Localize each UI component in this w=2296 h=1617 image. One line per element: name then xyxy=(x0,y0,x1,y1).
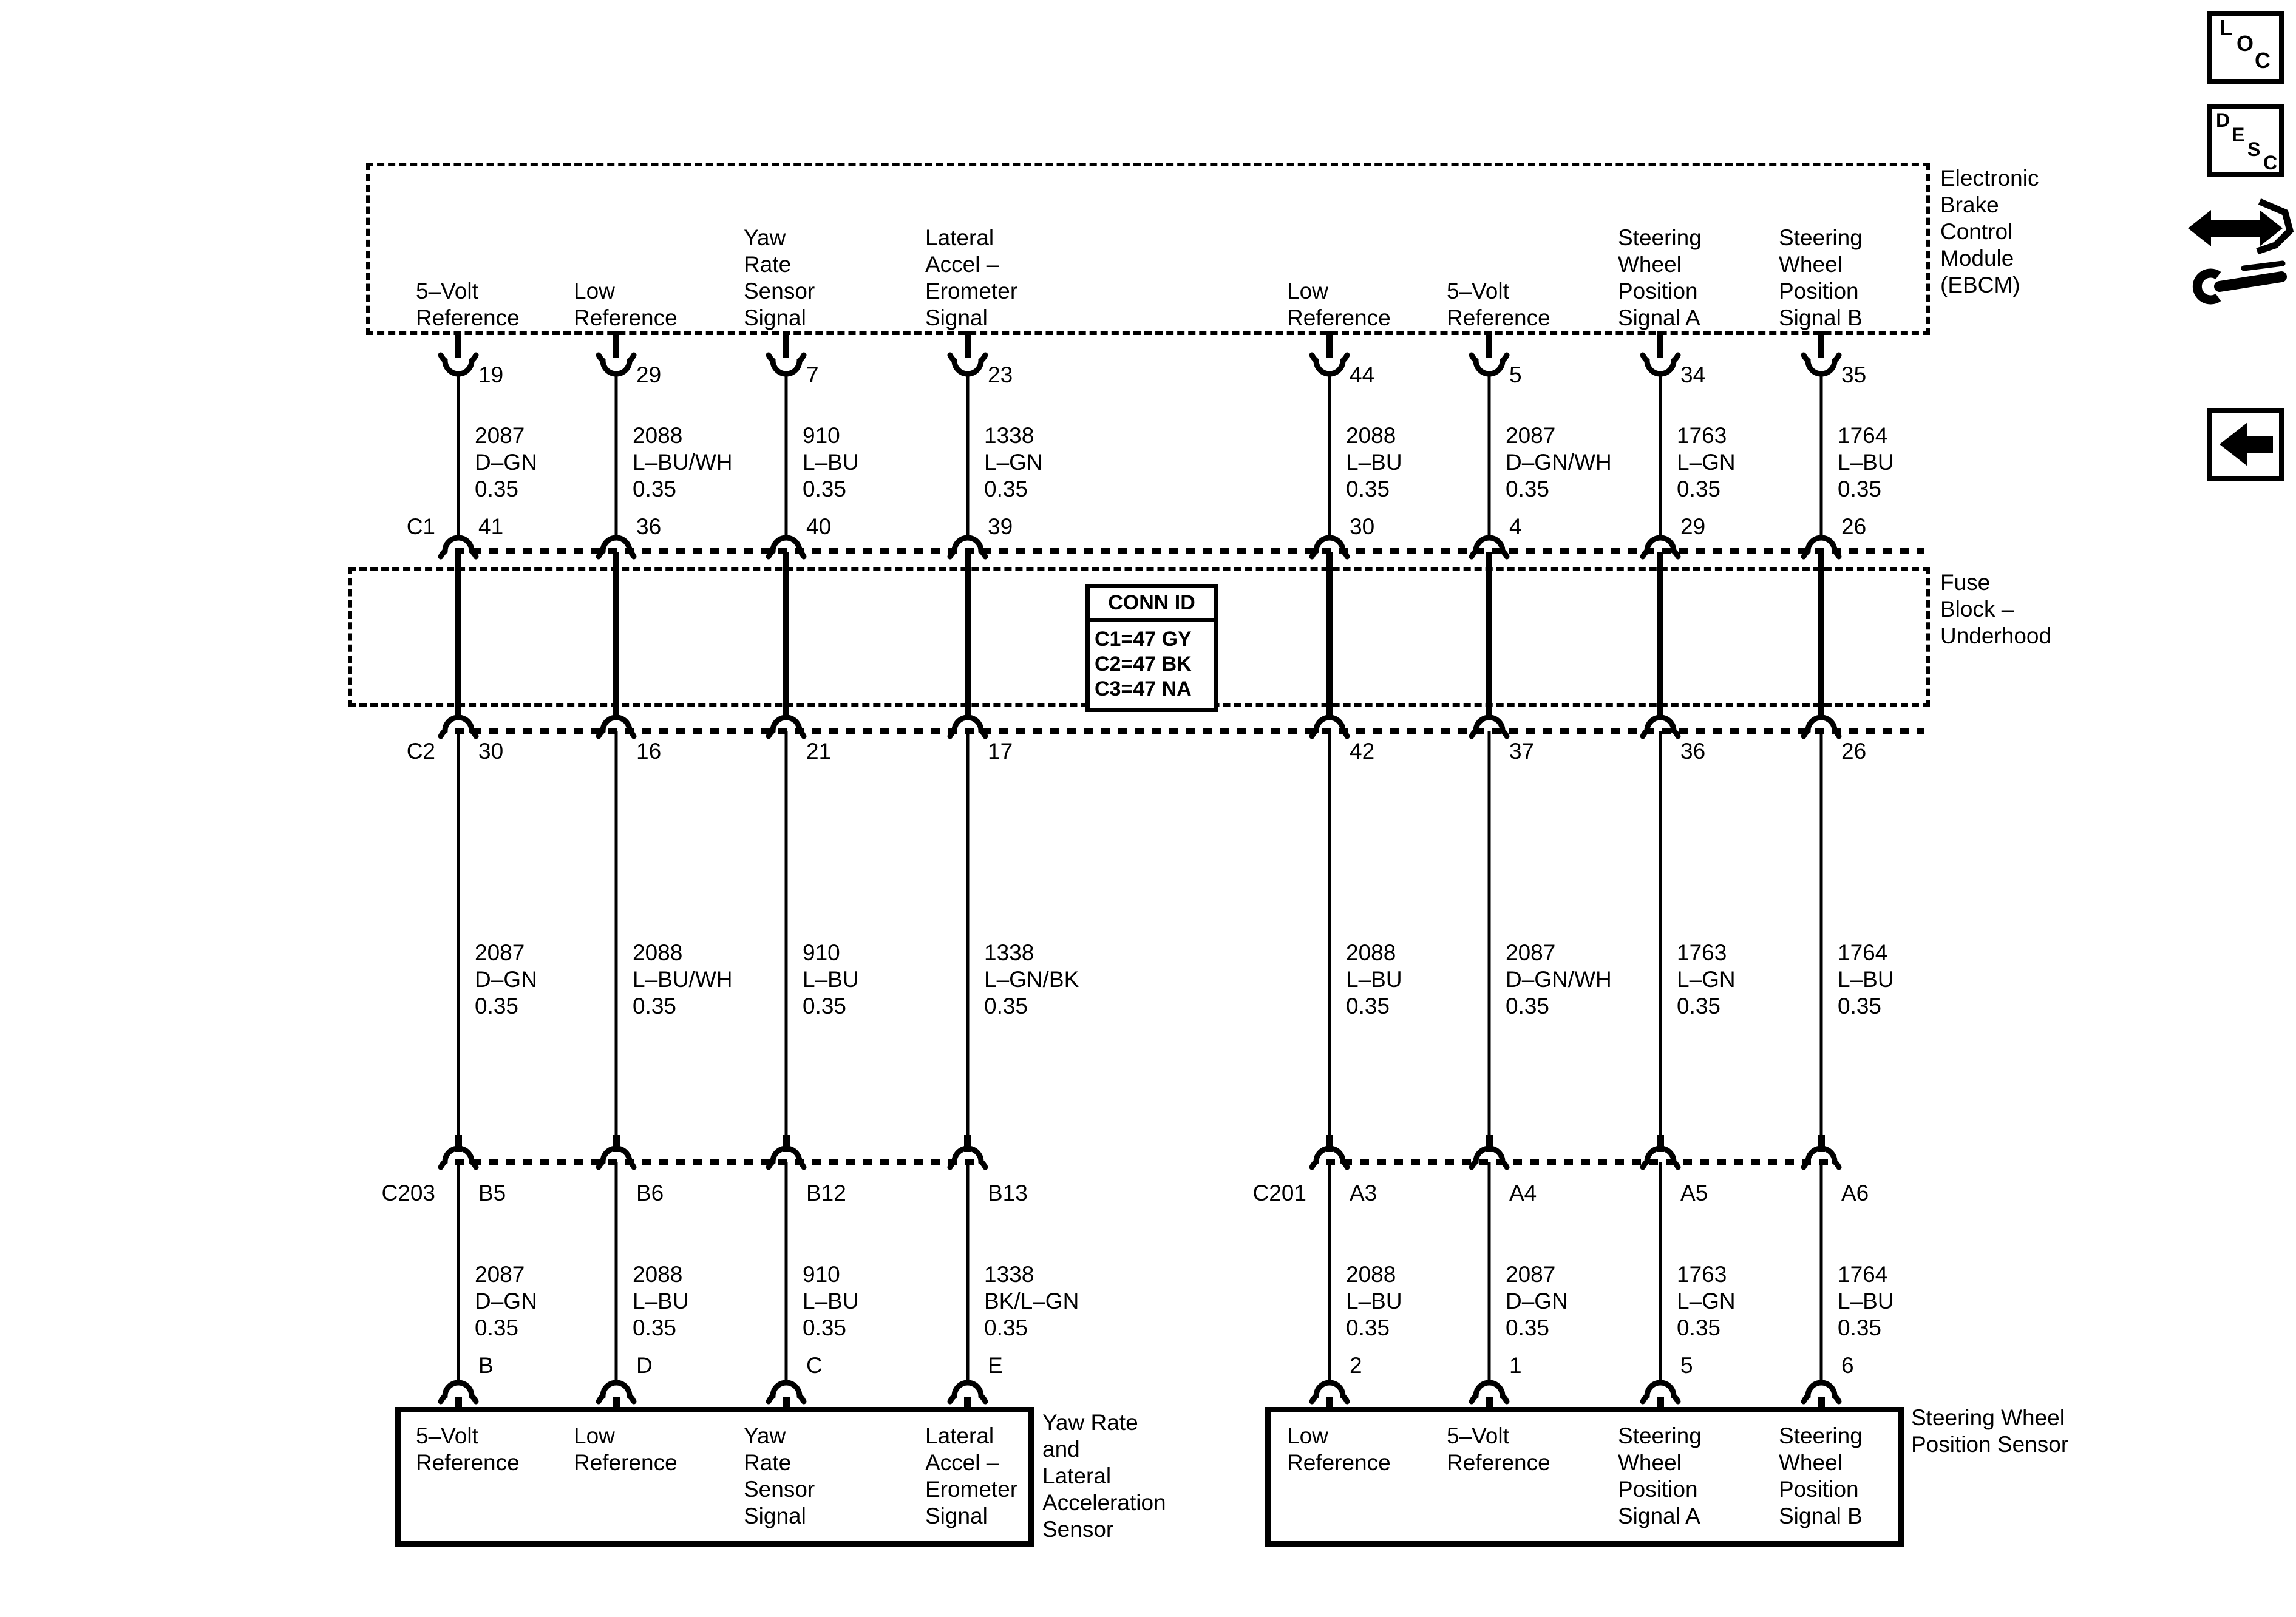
desc-letter: S xyxy=(2247,138,2260,160)
wire-mid-label-col3: 910 L–BU 0.35 xyxy=(803,940,859,1020)
device-signal-label-col5: Low Reference xyxy=(1287,1423,1391,1476)
conn-id-row: C1=47 GY xyxy=(1095,627,1209,652)
device-pin-col4: E xyxy=(988,1352,1003,1379)
device-pin-col3: C xyxy=(806,1352,823,1379)
ebcm-pin-col8: 35 xyxy=(1841,362,1866,388)
wire-bottom-label-col3: 910 L–BU 0.35 xyxy=(803,1261,859,1341)
conn-id-row: C2=47 BK xyxy=(1095,652,1209,677)
c1-pin-col6: 4 xyxy=(1509,514,1522,540)
c2-pin-col7: 36 xyxy=(1680,738,1705,765)
branch-pin-col1: B5 xyxy=(478,1180,506,1207)
ebcm-pin-stub xyxy=(965,331,971,358)
wire-bottom-label-col2: 2088 L–BU 0.35 xyxy=(633,1261,689,1341)
wire-top-label-col1: 2087 D–GN 0.35 xyxy=(475,422,537,503)
ebcm-pin-stub xyxy=(1818,331,1824,358)
yaw-sensor-label: Yaw Rate and Lateral Acceleration Sensor xyxy=(1042,1409,1166,1543)
desc-nav-button[interactable]: D E S C xyxy=(2207,104,2284,177)
loc-letter: L xyxy=(2220,17,2233,39)
branch-pin-col7: A5 xyxy=(1680,1180,1708,1207)
wire-segment-top xyxy=(457,371,460,539)
c2-dotted-line xyxy=(455,728,1924,734)
c203-dotted-line xyxy=(455,1159,979,1165)
c1-dotted-line xyxy=(455,548,1924,554)
wire-bottom-label-col5: 2088 L–BU 0.35 xyxy=(1346,1261,1402,1341)
connector-c2-label: C2 xyxy=(314,738,435,765)
wire-segment-mid xyxy=(785,731,788,1137)
wire-segment-top xyxy=(966,371,970,539)
wire-top-label-col7: 1763 L–GN 0.35 xyxy=(1677,422,1736,503)
wire-bottom-label-col4: 1338 BK/L–GN 0.35 xyxy=(984,1261,1079,1341)
device-pin-col2: D xyxy=(636,1352,653,1379)
conn-id-title: CONN ID xyxy=(1090,588,1214,622)
wire-bottom-label-col8: 1764 L–BU 0.35 xyxy=(1838,1261,1894,1341)
connector-c203-label: C203 xyxy=(314,1180,435,1207)
c2-pin-col2: 16 xyxy=(636,738,661,765)
swps-label: Steering Wheel Position Sensor xyxy=(1911,1405,2068,1458)
branch-pin-col8: A6 xyxy=(1841,1180,1869,1207)
wire-segment-bottom xyxy=(615,1162,618,1384)
device-signal-label-col6: 5–Volt Reference xyxy=(1447,1423,1550,1476)
ebcm-pin-stub xyxy=(1657,331,1663,358)
connector-c201-label: C201 xyxy=(1185,1180,1306,1207)
ebcm-label: Electronic Brake Control Module (EBCM) xyxy=(1940,165,2039,299)
ebcm-pin-col1: 19 xyxy=(478,362,503,388)
connector-c1-label: C1 xyxy=(314,514,435,540)
c1-pin-col7: 29 xyxy=(1680,514,1705,540)
conn-id-box: CONN ID C1=47 GY C2=47 BK C3=47 NA xyxy=(1085,584,1218,712)
wire-segment-top xyxy=(1820,371,1823,539)
ebcm-signal-label-col4: Lateral Accel – Erometer Signal xyxy=(925,225,1017,331)
wire-segment-top xyxy=(1488,371,1491,539)
device-signal-label-col3: Yaw Rate Sensor Signal xyxy=(744,1423,815,1530)
branch-pin-col2: B6 xyxy=(636,1180,664,1207)
device-signal-label-col1: 5–Volt Reference xyxy=(416,1423,520,1476)
ebcm-pin-col7: 34 xyxy=(1680,362,1705,388)
back-nav-button[interactable] xyxy=(2207,408,2284,481)
device-signal-label-col8: Steering Wheel Position Signal B xyxy=(1779,1423,1863,1530)
loc-letter: C xyxy=(2255,50,2271,72)
wire-segment-mid xyxy=(1820,731,1823,1137)
desc-letter: E xyxy=(2232,124,2244,146)
c2-pin-col6: 37 xyxy=(1509,738,1534,765)
wire-bottom-label-col6: 2087 D–GN 0.35 xyxy=(1506,1261,1568,1341)
ebcm-signal-label-col5: Low Reference xyxy=(1287,278,1391,331)
c201-dotted-line xyxy=(1326,1159,1832,1165)
c2-pin-col1: 30 xyxy=(478,738,503,765)
c1-pin-col2: 36 xyxy=(636,514,661,540)
ebcm-signal-label-col2: Low Reference xyxy=(574,278,678,331)
device-pin-col5: 2 xyxy=(1350,1352,1362,1379)
wire-segment-mid xyxy=(966,731,970,1137)
branch-pin-col4: B13 xyxy=(988,1180,1028,1207)
ebcm-signal-label-col1: 5–Volt Reference xyxy=(416,278,520,331)
ebcm-pin-col4: 23 xyxy=(988,362,1013,388)
wiring-diagram-page: Electronic Brake Control Module (EBCM) F… xyxy=(0,0,2296,1617)
wire-top-label-col6: 2087 D–GN/WH 0.35 xyxy=(1506,422,1612,503)
wire-segment-bottom xyxy=(966,1162,970,1384)
wire-segment-mid xyxy=(457,731,460,1137)
wire-segment-mid xyxy=(1328,731,1331,1137)
c2-pin-col5: 42 xyxy=(1350,738,1374,765)
wire-segment-bottom xyxy=(1328,1162,1331,1384)
ebcm-pin-stub xyxy=(1326,331,1333,358)
ebcm-signal-label-col8: Steering Wheel Position Signal B xyxy=(1779,225,1863,331)
wire-mid-label-col2: 2088 L–BU/WH 0.35 xyxy=(633,940,732,1020)
device-pin-col6: 1 xyxy=(1509,1352,1522,1379)
wire-top-label-col8: 1764 L–BU 0.35 xyxy=(1838,422,1894,503)
ebcm-pin-stub xyxy=(1486,331,1492,358)
wire-top-label-col4: 1338 L–GN 0.35 xyxy=(984,422,1043,503)
wire-segment-top xyxy=(1328,371,1331,539)
wrench-double-arrow-icon xyxy=(2186,197,2294,310)
c1-pin-col1: 41 xyxy=(478,514,503,540)
desc-letter: C xyxy=(2263,152,2277,174)
wire-top-label-col3: 910 L–BU 0.35 xyxy=(803,422,859,503)
wire-segment-bottom xyxy=(1488,1162,1491,1384)
c2-pin-col8: 26 xyxy=(1841,738,1866,765)
wire-mid-label-col6: 2087 D–GN/WH 0.35 xyxy=(1506,940,1612,1020)
wire-mid-label-col4: 1338 L–GN/BK 0.35 xyxy=(984,940,1079,1020)
wire-mid-label-col1: 2087 D–GN 0.35 xyxy=(475,940,537,1020)
wire-segment-top xyxy=(1659,371,1662,539)
fuse-block-label: Fuse Block – Underhood xyxy=(1940,569,2051,649)
wire-bottom-label-col1: 2087 D–GN 0.35 xyxy=(475,1261,537,1341)
wire-segment-mid xyxy=(1488,731,1491,1137)
wire-segment-bottom xyxy=(457,1162,460,1384)
loc-nav-button[interactable]: L O C xyxy=(2207,11,2284,84)
branch-pin-col6: A4 xyxy=(1509,1180,1537,1207)
device-signal-label-col2: Low Reference xyxy=(574,1423,678,1476)
wire-segment-top xyxy=(615,371,618,539)
ebcm-pin-col3: 7 xyxy=(806,362,819,388)
device-pin-col8: 6 xyxy=(1841,1352,1854,1379)
ebcm-signal-label-col7: Steering Wheel Position Signal A xyxy=(1618,225,1702,331)
wire-top-label-col2: 2088 L–BU/WH 0.35 xyxy=(633,422,732,503)
wire-segment-bottom xyxy=(1659,1162,1662,1384)
loc-letter: O xyxy=(2237,33,2254,55)
wire-mid-label-col8: 1764 L–BU 0.35 xyxy=(1838,940,1894,1020)
ebcm-pin-stub xyxy=(613,331,619,358)
ebcm-signal-label-col3: Yaw Rate Sensor Signal xyxy=(744,225,815,331)
branch-pin-col5: A3 xyxy=(1350,1180,1377,1207)
wire-segment-mid xyxy=(615,731,618,1137)
wire-segment-bottom xyxy=(1820,1162,1823,1384)
conn-id-row: C3=47 NA xyxy=(1095,677,1209,702)
wire-mid-label-col7: 1763 L–GN 0.35 xyxy=(1677,940,1736,1020)
ebcm-signal-label-col6: 5–Volt Reference xyxy=(1447,278,1550,331)
c1-pin-col8: 26 xyxy=(1841,514,1866,540)
device-signal-label-col7: Steering Wheel Position Signal A xyxy=(1618,1423,1702,1530)
ebcm-pin-col2: 29 xyxy=(636,362,661,388)
ebcm-pin-stub xyxy=(783,331,789,358)
ebcm-pin-col6: 5 xyxy=(1509,362,1522,388)
wire-segment-top xyxy=(785,371,788,539)
device-pin-col7: 5 xyxy=(1680,1352,1693,1379)
wire-mid-label-col5: 2088 L–BU 0.35 xyxy=(1346,940,1402,1020)
device-signal-label-col4: Lateral Accel – Erometer Signal xyxy=(925,1423,1017,1530)
ebcm-pin-stub xyxy=(455,331,461,358)
wire-top-label-col5: 2088 L–BU 0.35 xyxy=(1346,422,1402,503)
c1-pin-col3: 40 xyxy=(806,514,831,540)
adjust-nav-button[interactable] xyxy=(2186,197,2294,310)
ebcm-pin-col5: 44 xyxy=(1350,362,1374,388)
c1-pin-col4: 39 xyxy=(988,514,1013,540)
device-pin-col1: B xyxy=(478,1352,494,1379)
wire-bottom-label-col7: 1763 L–GN 0.35 xyxy=(1677,1261,1736,1341)
desc-letter: D xyxy=(2216,109,2230,131)
branch-pin-col3: B12 xyxy=(806,1180,846,1207)
c2-pin-col4: 17 xyxy=(988,738,1013,765)
c1-pin-col5: 30 xyxy=(1350,514,1374,540)
back-arrow-icon xyxy=(2212,413,2279,476)
wire-segment-mid xyxy=(1659,731,1662,1137)
wire-segment-bottom xyxy=(785,1162,788,1384)
c2-pin-col3: 21 xyxy=(806,738,831,765)
